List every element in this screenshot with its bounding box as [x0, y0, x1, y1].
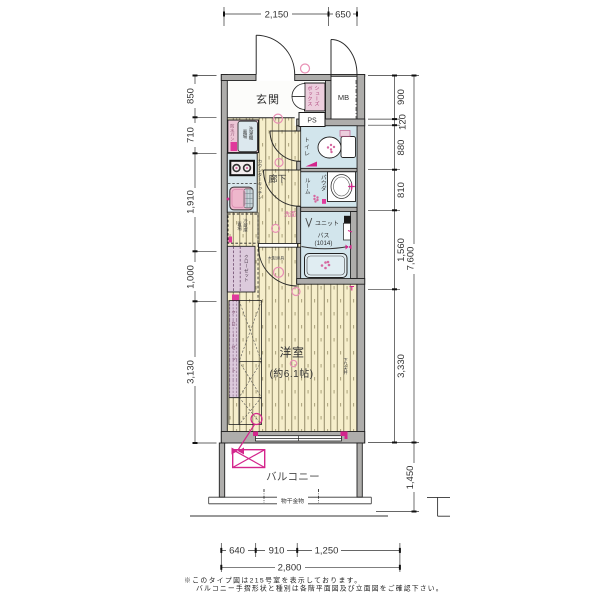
- svg-text:冷蔵庫: 冷蔵庫: [243, 217, 249, 233]
- svg-text:7,600: 7,600: [406, 247, 417, 271]
- svg-text:バス: バス: [317, 233, 329, 240]
- svg-text:置場: 置場: [242, 129, 248, 140]
- svg-text:(1014): (1014): [315, 240, 333, 247]
- svg-text:3,130: 3,130: [186, 360, 197, 384]
- svg-text:バルコニー: バルコニー: [266, 471, 320, 483]
- svg-text:クローゼット: クローゼット: [244, 255, 250, 283]
- svg-text:※このタイプ図は215号室を表示しております。: ※このタイプ図は215号室を表示しております。: [184, 576, 362, 585]
- svg-text:クローゼット: クローゼット: [231, 310, 237, 380]
- svg-text:910: 910: [269, 546, 285, 557]
- svg-text:玄関: 玄関: [256, 92, 280, 106]
- svg-text:物干金物: 物干金物: [281, 497, 304, 505]
- svg-text:カウンターキッチン: カウンターキッチン: [257, 159, 263, 200]
- svg-text:710: 710: [186, 127, 197, 143]
- svg-text:置場: 置場: [237, 221, 243, 232]
- svg-text:パウダ: パウダ: [320, 174, 327, 192]
- svg-text:120: 120: [398, 114, 409, 130]
- svg-text:廊下: 廊下: [268, 173, 286, 184]
- svg-text:2,800: 2,800: [278, 563, 302, 574]
- svg-text:850: 850: [186, 88, 197, 104]
- svg-text:1,250: 1,250: [315, 546, 339, 557]
- svg-text:810: 810: [396, 182, 407, 198]
- svg-text:3,330: 3,330: [396, 354, 407, 378]
- svg-text:880: 880: [396, 140, 407, 156]
- svg-text:2,150: 2,150: [265, 9, 289, 20]
- svg-text:トイレ: トイレ: [303, 137, 310, 157]
- svg-text:ボックス: ボックス: [307, 85, 313, 107]
- svg-text:640: 640: [229, 546, 245, 557]
- svg-text:シューズ: シューズ: [314, 86, 320, 107]
- svg-text:木製建具: 木製建具: [268, 255, 286, 262]
- svg-text:下り天井: 下り天井: [343, 357, 349, 376]
- svg-text:ルーム: ルーム: [304, 178, 311, 195]
- svg-text:MB: MB: [338, 93, 349, 102]
- svg-text:バルコニー手摺形状と種別は各階平面図及び立面図をご確認下さい: バルコニー手摺形状と種別は各階平面図及び立面図をご確認下さい。: [196, 584, 444, 593]
- svg-text:PS: PS: [307, 117, 317, 124]
- svg-text:1,450: 1,450: [405, 466, 416, 490]
- svg-text:(約6.1帖): (約6.1帖): [269, 367, 313, 380]
- svg-text:650: 650: [335, 9, 351, 20]
- svg-text:900: 900: [396, 89, 407, 105]
- svg-text:1,000: 1,000: [186, 265, 197, 289]
- svg-text:洗濯機: 洗濯機: [248, 125, 254, 141]
- svg-text:洋室: 洋室: [279, 345, 304, 360]
- svg-text:ユニット: ユニット: [315, 221, 339, 228]
- svg-text:1,910: 1,910: [186, 190, 197, 214]
- svg-text:洗面: 洗面: [284, 211, 296, 219]
- svg-text:防水パン: 防水パン: [229, 123, 235, 142]
